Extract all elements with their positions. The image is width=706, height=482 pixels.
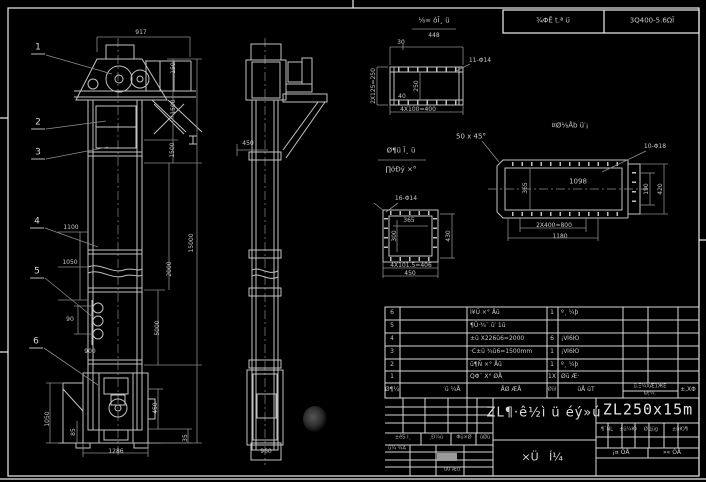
balloon-4: 4 bbox=[30, 218, 44, 229]
dim-190: 190 bbox=[644, 183, 650, 194]
tb-left-header-2: ¸Đ¼ü bbox=[429, 436, 443, 441]
detail-c-title-line2: ∏óĐý ×° bbox=[386, 167, 417, 174]
screen-smudge bbox=[303, 406, 327, 432]
tb-left-field-2: üü Æū bbox=[444, 468, 460, 473]
dim-4x100: 4X100=400 bbox=[400, 107, 436, 113]
dim-917: 917 bbox=[135, 30, 146, 36]
bom-row-material: ¡Ⅵ6Ю bbox=[561, 336, 579, 342]
bom-row-qty: 1X bbox=[548, 374, 556, 380]
bom-header-no: Ø¶¼ bbox=[385, 387, 399, 393]
bom-row-qty: 1 bbox=[550, 349, 554, 355]
drawing-model-number: ZL250x15m bbox=[603, 403, 693, 418]
bom-row-no: 3 bbox=[390, 349, 394, 355]
bom-header-name: ÅØ ÆÅ bbox=[501, 387, 522, 393]
tb-sheet-number: »« ÓÅ bbox=[663, 450, 681, 456]
bom-row-material: Øū Æ· bbox=[561, 374, 579, 380]
detail-c-title-line1: Ø¶ü Ī¸ ü bbox=[387, 148, 416, 155]
detail-a-scale: 448 bbox=[428, 33, 439, 39]
holes-16-d14: 16-Φ14 bbox=[395, 196, 417, 202]
dim-4x101: 4X101.5=406 bbox=[390, 263, 432, 269]
drawing-type-char-1: ×Ü bbox=[521, 452, 538, 463]
bom-row-no: 1 bbox=[390, 374, 394, 380]
dim-1050-b: 1050 bbox=[45, 411, 51, 426]
tb-left-field-1: ü¼ ¾Å bbox=[388, 447, 406, 452]
drawing-title: ZL¶·ê½ì ü éý»ú bbox=[487, 407, 602, 420]
dim-5000: 5000 bbox=[155, 320, 161, 335]
dim-1286: 1286 bbox=[108, 449, 123, 455]
dim-300: 300 bbox=[392, 230, 398, 241]
dim-450: 450 bbox=[153, 402, 159, 413]
dim-35: 35 bbox=[183, 434, 189, 442]
dim-1050: 1050 bbox=[62, 260, 77, 266]
dim-250-inner: 250 bbox=[414, 80, 420, 91]
dim-150: 150 bbox=[171, 62, 177, 73]
dim-85: 85 bbox=[71, 428, 77, 436]
tb-right-header-1: ¶¨ÑL bbox=[601, 428, 613, 433]
balloon-5: 5 bbox=[30, 268, 44, 279]
bom-row-desc: ·C±ū ¾ū6=1500mm bbox=[470, 349, 532, 355]
balloon-2: 2 bbox=[31, 119, 45, 130]
detail-b-title: ¤Ø⅛Åb ü′¡ bbox=[551, 123, 588, 130]
bom-row-no: 6 bbox=[390, 310, 394, 316]
chamfer-note: 50 x 45° bbox=[456, 134, 486, 141]
dim-90: 90 bbox=[66, 317, 74, 323]
tb-sheet-count: ¡¤ ÓÅ bbox=[613, 450, 630, 456]
tb-left-header-3: Φü×Ø bbox=[456, 436, 471, 441]
bom-header-total-weight: Ø¦¼. bbox=[644, 392, 656, 397]
bom-row-desc: ū¶Ñ ×° Åū bbox=[470, 362, 502, 368]
dim-960: 960 bbox=[260, 449, 271, 455]
tb-right-header-4: ±üЮ¶ bbox=[672, 428, 688, 433]
tb-left-header-4: ūØü bbox=[480, 436, 490, 441]
dim-430: 430 bbox=[446, 230, 452, 241]
dim-2000: 2000 bbox=[167, 261, 173, 276]
balloon-6: 6 bbox=[29, 338, 43, 349]
bom-header-unit-weight: ū.Ξ¼XÆ1ЖЕ bbox=[634, 385, 667, 390]
bom-row-desc: QΦ¨ X° ØÅ bbox=[470, 374, 502, 380]
bom-header-drawing-no: ′ū ¼Å bbox=[444, 387, 461, 393]
bom-header-qty: Øūl bbox=[548, 388, 557, 393]
dim-365-c: 365 bbox=[403, 218, 414, 224]
tb-right-header-2: ±ü¼Ю bbox=[619, 428, 637, 433]
holes-11-d14: 11-Φ14 bbox=[469, 58, 491, 64]
dim-1098: 1098 bbox=[569, 179, 587, 186]
side-view bbox=[237, 38, 327, 465]
drawing-type-char-2: Í¼ bbox=[549, 452, 563, 463]
dim-420: 420 bbox=[658, 183, 664, 194]
dim-2x400: 2X400=800 bbox=[536, 223, 572, 229]
dim-1180: 1180 bbox=[552, 234, 567, 240]
dim-450-side: 450 bbox=[242, 141, 253, 147]
tb-left-header-1: ±êƼ Ι¸ bbox=[395, 436, 411, 441]
bom-row-desc: Ì¥Ü ×° Åū bbox=[470, 310, 500, 316]
detail-a-title: ⅛∞ óĪ¸ ü bbox=[418, 18, 449, 25]
dim-450-c: 450 bbox=[404, 271, 415, 277]
cad-drawing-sheet: ¾ΦĒ t.ª ü 3Q400-5.6ΩΪ 1 2 3 4 5 6 917 15… bbox=[0, 0, 706, 482]
dim-1500-b: 1500 bbox=[170, 142, 176, 157]
bom-row-no: 2 bbox=[390, 362, 394, 368]
holes-10-d18: 10-Φ18 bbox=[644, 144, 666, 150]
bom-header-remark: ±,XΦ bbox=[680, 387, 696, 393]
detail-a-section bbox=[377, 29, 470, 115]
dim-2x125: 2X125=250 bbox=[371, 68, 377, 104]
bom-row-material: ¡Ⅵ6Ю bbox=[561, 349, 579, 355]
tb-right-header-3: ØЦüg bbox=[644, 428, 658, 433]
dim-40: 40 bbox=[398, 94, 406, 100]
stamp-left-text: ¾ΦĒ t.ª ü bbox=[536, 18, 570, 25]
bom-row-material: º¸ ¼þ bbox=[561, 310, 578, 316]
bom-row-no: 4 bbox=[390, 336, 394, 342]
bom-header-material: ūÅ ūT bbox=[577, 387, 594, 393]
bom-row-material: º¸ ¼þ bbox=[561, 362, 578, 368]
bom-row-qty: 6 bbox=[550, 336, 554, 342]
balloon-3: 3 bbox=[31, 149, 45, 160]
bom-row-qty: 1 bbox=[550, 310, 554, 316]
dim-1500-a: 1500 bbox=[171, 99, 177, 114]
bom-row-qty: 1 bbox=[550, 362, 554, 368]
dim-30: 30 bbox=[397, 40, 405, 46]
dim-365-b: 365 bbox=[523, 182, 529, 193]
bom-row-desc: ¶Ū·¾¨ ū′ 1ū bbox=[470, 323, 506, 329]
stamp-drawing-number: 3Q400-5.6ΩΪ bbox=[630, 18, 674, 25]
bom-row-no: 5 bbox=[390, 323, 394, 329]
dim-1100: 1100 bbox=[63, 225, 78, 231]
balloon-1: 1 bbox=[31, 44, 45, 55]
detail-b-plate bbox=[482, 141, 668, 241]
highlighted-cell bbox=[437, 453, 457, 461]
dim-15000: 15000 bbox=[189, 233, 195, 252]
dim-900: 900 bbox=[84, 349, 95, 355]
bom-row-desc: ±ū X226ū6=2000 bbox=[470, 336, 524, 342]
